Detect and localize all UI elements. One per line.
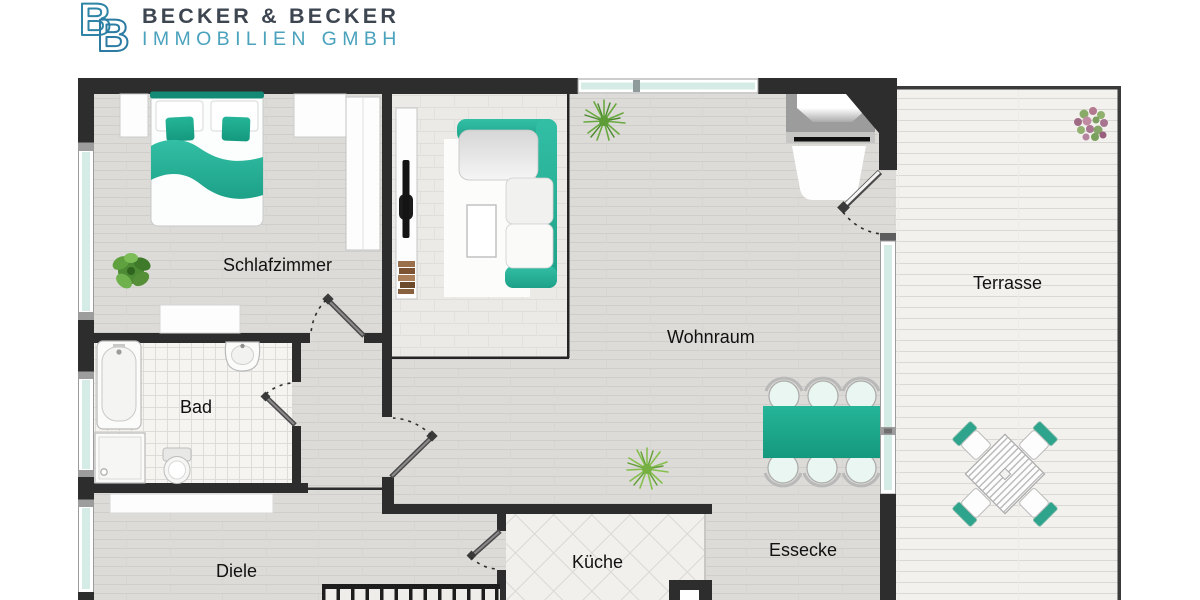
- svg-text:BECKER & BECKER: BECKER & BECKER: [142, 4, 399, 28]
- svg-text:Essecke: Essecke: [769, 540, 837, 560]
- svg-text:IMMOBILIEN GMBH: IMMOBILIEN GMBH: [142, 28, 402, 50]
- svg-text:Schlafzimmer: Schlafzimmer: [223, 255, 332, 275]
- svg-text:Diele: Diele: [216, 561, 257, 581]
- svg-text:B: B: [97, 10, 130, 61]
- svg-text:Wohnraum: Wohnraum: [667, 327, 755, 347]
- svg-text:Bad: Bad: [180, 397, 212, 417]
- svg-text:Terrasse: Terrasse: [973, 273, 1042, 293]
- svg-text:Küche: Küche: [572, 552, 623, 572]
